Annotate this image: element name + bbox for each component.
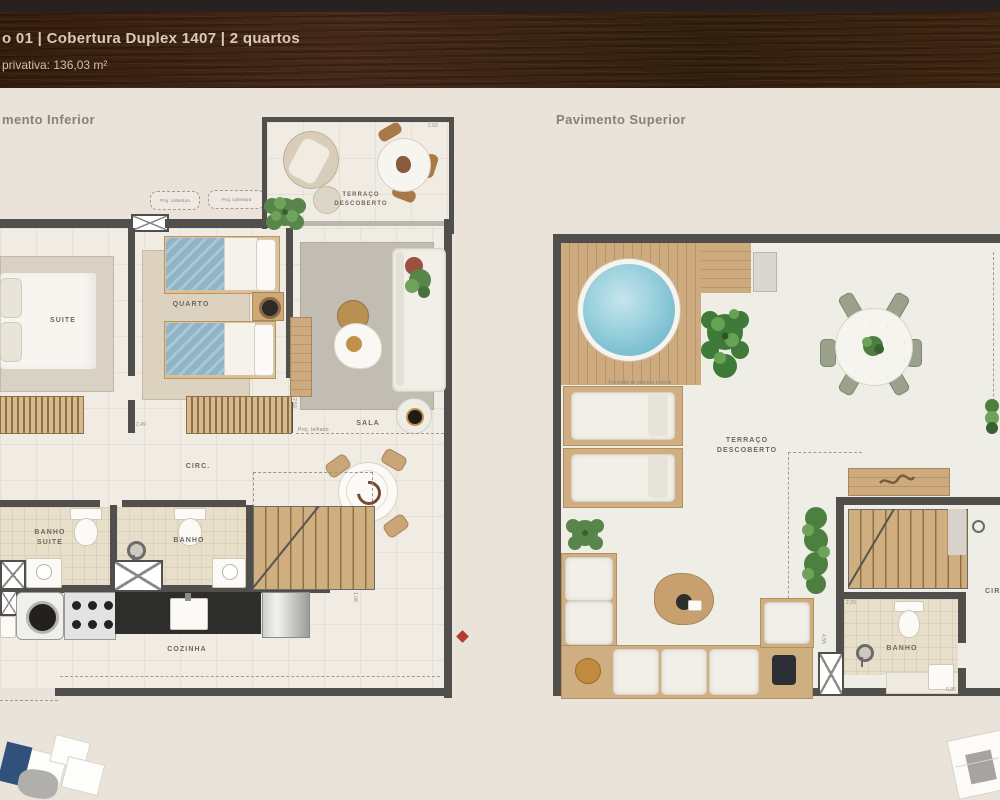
sofa-cushion-l2 bbox=[565, 601, 613, 645]
corner-plant bbox=[563, 510, 607, 556]
covered-area-dash-h bbox=[788, 452, 862, 453]
sup-duct-box bbox=[818, 652, 844, 696]
sup-terrace-label-1: TERRAÇO bbox=[726, 436, 768, 445]
sup-toilet-bowl bbox=[898, 610, 920, 638]
sup-banho-wall-right-1 bbox=[958, 599, 966, 643]
table-centerpiece bbox=[858, 331, 888, 361]
lounger-1-pillow bbox=[648, 394, 668, 436]
floor-plan-superior: Previsão p/ piscina e deck TERRAÇO DESCO… bbox=[0, 0, 1000, 800]
sup-circ-label: CIRC. bbox=[985, 587, 1000, 596]
circ-label-clipped: CIRC. bbox=[985, 587, 1000, 598]
sofa-cushion-b1 bbox=[613, 649, 659, 695]
pool-deck-step bbox=[701, 243, 751, 293]
sup-banho-wall-right-2 bbox=[958, 668, 966, 696]
sofa-cushion-b2 bbox=[661, 649, 707, 695]
coffee-decor-tray bbox=[688, 600, 702, 611]
column-marker bbox=[972, 520, 985, 533]
palm-plant bbox=[698, 292, 752, 388]
keyplan-left-unit-3 bbox=[61, 756, 106, 796]
stairs-landing bbox=[948, 509, 966, 555]
hedge-plant bbox=[797, 506, 835, 594]
sup-shower-stem bbox=[861, 657, 863, 667]
dim-220: 2.20 bbox=[846, 600, 856, 606]
deck-planter bbox=[753, 252, 777, 292]
lounger-2-pillow bbox=[648, 456, 668, 498]
round-pool bbox=[578, 259, 680, 361]
sup-shower-head bbox=[856, 644, 874, 662]
edge-plant bbox=[984, 398, 1000, 434]
keyplan-left bbox=[0, 726, 120, 800]
keyplan-right bbox=[945, 722, 1000, 800]
sup-wall-top bbox=[553, 234, 1000, 243]
sup-chair-w bbox=[820, 339, 836, 367]
sup-banho-wall-top bbox=[836, 592, 966, 599]
dim-455: 4.55 bbox=[820, 634, 826, 644]
fire-pit bbox=[772, 655, 796, 685]
sofa-gold-table bbox=[575, 658, 601, 684]
sup-wall-left bbox=[553, 234, 561, 696]
sofa-cushion-l1 bbox=[565, 557, 613, 601]
sofa-cushion-r1 bbox=[764, 602, 810, 644]
sup-terrace-label-2: DESCOBERTO bbox=[717, 446, 777, 455]
sup-stairs-wall-top bbox=[836, 497, 1000, 505]
sofa-cushion-b3 bbox=[709, 649, 759, 695]
sup-stairs-wall-left bbox=[836, 497, 844, 592]
sideboard-decor bbox=[878, 473, 916, 489]
sup-banho-label: BANHO bbox=[886, 644, 917, 653]
dim-036: 0.36 bbox=[946, 687, 956, 693]
brochure-page: o 01 | Cobertura Duplex 1407 | 2 quartos… bbox=[0, 0, 1000, 800]
